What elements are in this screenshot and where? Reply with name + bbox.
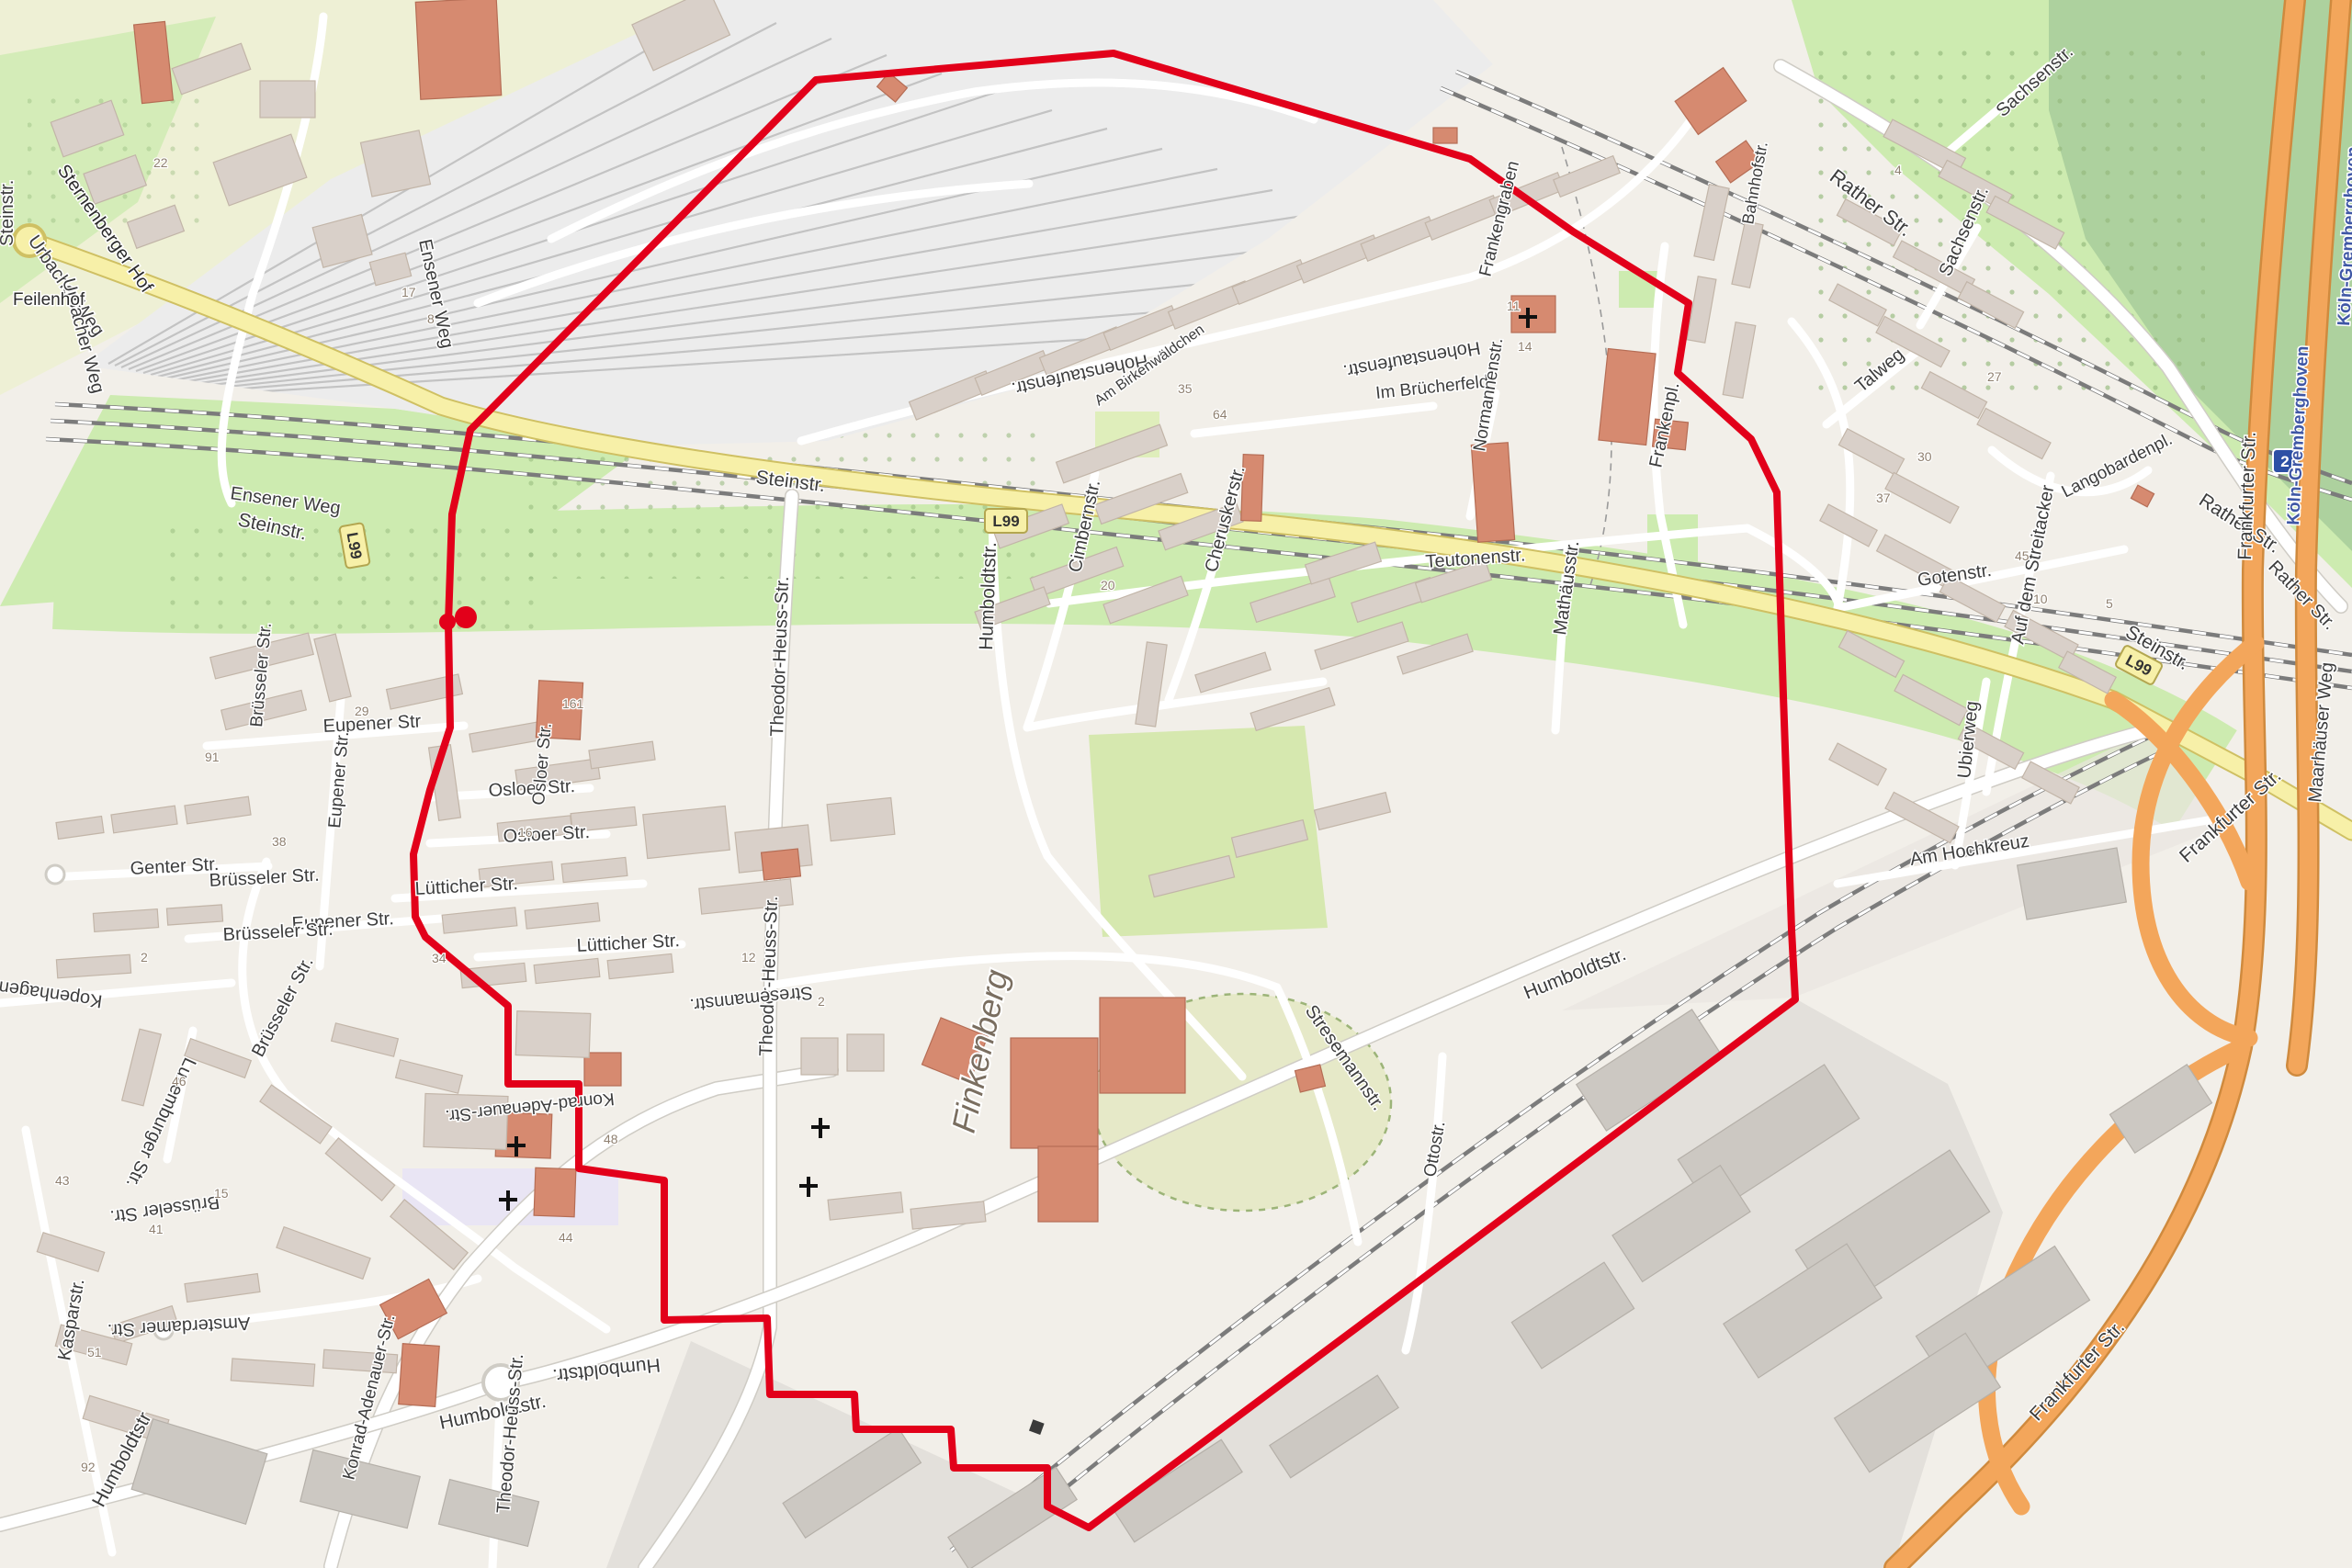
housenumber-label: 51 (87, 1345, 102, 1359)
housenumber-label: 17 (401, 285, 416, 299)
housenumber-label: 45 (2015, 548, 2030, 563)
boundary-point-marker[interactable] (439, 614, 456, 630)
street-label: Frankfurter Str. (2234, 431, 2260, 560)
housenumber-label: 11 (1507, 299, 1521, 313)
housenumber-label: 44 (559, 1230, 573, 1245)
housenumber-label: 15 (214, 1186, 229, 1201)
housenumber-label: 27 (1987, 369, 2002, 384)
map-canvas[interactable]: L99L99L992 Sternenberger HofUrbacher Weg… (0, 0, 2352, 1568)
housenumber-label: 10 (2033, 592, 2048, 606)
housenumber-label: 8 (427, 311, 435, 326)
housenumber-label: 48 (604, 1132, 618, 1146)
housenumber-label: 30 (1917, 449, 1932, 464)
housenumber-label: 41 (149, 1222, 164, 1236)
farm-label: Feilenhof (13, 290, 85, 310)
street-label: Steinstr. (0, 180, 17, 246)
housenumber-label: 43 (55, 1173, 70, 1188)
housenumber-label: 14 (1518, 339, 1532, 354)
housenumber-label: 12 (741, 950, 756, 964)
housenumber-label: 91 (205, 750, 220, 764)
housenumber-label: 2 (141, 950, 148, 964)
housenumber-label: 46 (172, 1074, 187, 1089)
housenumber-label: 37 (1876, 491, 1891, 505)
boundary-point-marker[interactable] (455, 606, 477, 628)
housenumber-label: 64 (1213, 407, 1227, 422)
housenumber-label: 4 (1894, 163, 1902, 177)
svg-text:L99: L99 (992, 513, 1019, 530)
housenumber-label: 29 (355, 704, 369, 718)
housenumber-label: 2 (818, 994, 825, 1009)
housenumber-label: 161 (562, 696, 584, 711)
housenumber-label: 5 (2106, 596, 2113, 611)
housenumber-label: 92 (81, 1460, 96, 1474)
housenumber-label: 34 (432, 951, 447, 965)
housenumber-label: 20 (1101, 578, 1115, 592)
street-label: Humboldtstr. (976, 542, 1001, 651)
housenumber-label: 16 (518, 825, 533, 840)
housenumber-label: 38 (272, 834, 287, 849)
road-ref-shield: L99 (985, 509, 1027, 533)
housenumber-label: 22 (153, 155, 168, 170)
housenumber-label: 35 (1178, 381, 1193, 396)
